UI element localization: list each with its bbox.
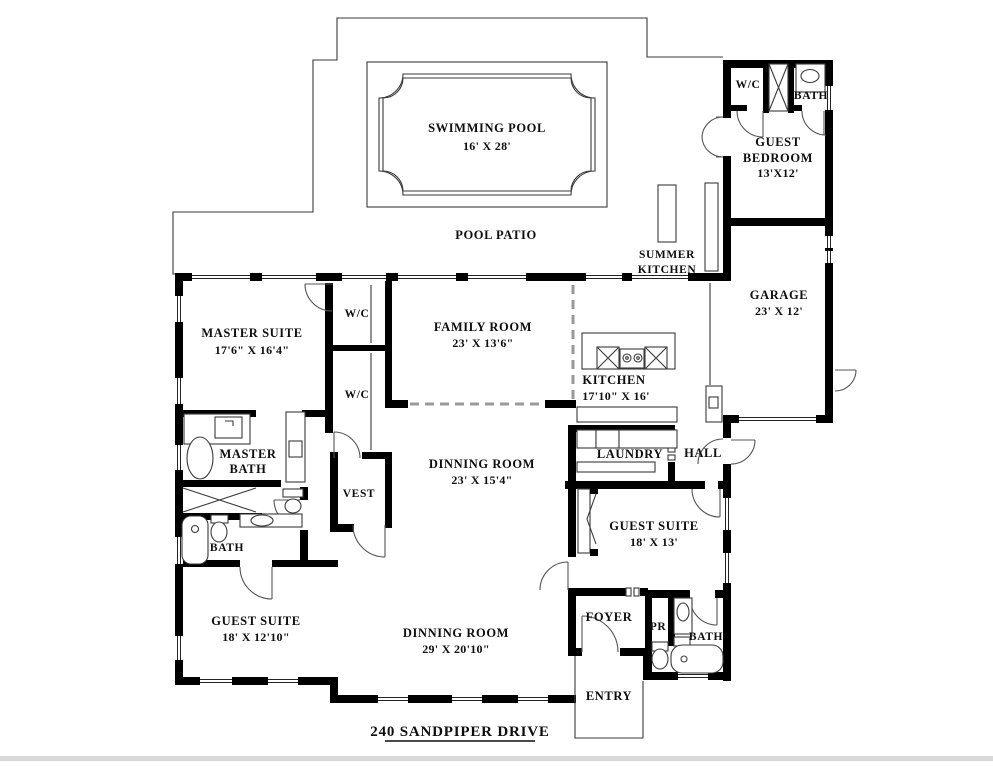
room-label-guest-bedroom-2: BEDROOM bbox=[743, 151, 813, 165]
linen-cabinet-icon bbox=[286, 412, 305, 482]
room-label-master-suite: MASTER SUITE bbox=[201, 326, 302, 340]
room-dims-kitchen: 17'10" X 16' bbox=[582, 389, 650, 403]
bathtub-icon bbox=[671, 645, 723, 673]
tub-icon bbox=[187, 437, 213, 479]
room-label-bath-right: BATH bbox=[689, 631, 723, 643]
room-label-vest: VEST bbox=[343, 488, 375, 500]
room-dims-dinning-upper: 23' X 15'4" bbox=[451, 473, 512, 487]
room-label-guest-suite-left: GUEST SUITE bbox=[211, 614, 300, 628]
sink-icon bbox=[240, 514, 302, 527]
room-label-family-room: FAMILY ROOM bbox=[434, 320, 532, 334]
room-label-guest-bedroom-1: GUEST bbox=[755, 135, 800, 149]
room-label-foyer: FOYER bbox=[586, 610, 633, 624]
room-label-laundry: LAUNDRY bbox=[597, 447, 663, 461]
room-dims-guest-suite-left: 18' X 12'10" bbox=[222, 630, 290, 644]
closet-x-icon bbox=[769, 64, 788, 111]
room-label-kitchen: KITCHEN bbox=[582, 373, 645, 387]
kitchen-counter bbox=[577, 407, 677, 422]
room-label-pr: PR bbox=[650, 621, 667, 633]
sink-x-icon bbox=[645, 347, 667, 369]
room-dims-garage: 23' X 12' bbox=[755, 304, 803, 318]
room-label-garage: GARAGE bbox=[750, 288, 808, 302]
toilet-icon bbox=[652, 642, 668, 669]
room-label-summer-kitchen-1: SUMMER bbox=[639, 249, 695, 261]
page-edge bbox=[0, 756, 993, 761]
room-label-guest-suite-right: GUEST SUITE bbox=[609, 519, 698, 533]
wall-counter bbox=[705, 183, 718, 271]
floor-plan-image: SWIMMING POOL 16' X 28' POOL PATIO W/C B… bbox=[0, 0, 993, 767]
room-label-wc-1: W/C bbox=[345, 308, 370, 320]
room-label-swimming-pool: SWIMMING POOL bbox=[428, 121, 546, 135]
room-label-entry: ENTRY bbox=[586, 689, 632, 703]
summer-kitchen-counter bbox=[658, 185, 676, 242]
room-label-wc-2: W/C bbox=[345, 389, 370, 401]
room-label-summer-kitchen-2: KITCHEN bbox=[638, 264, 697, 276]
background bbox=[0, 0, 993, 767]
floor-plan-page: SWIMMING POOL 16' X 28' POOL PATIO W/C B… bbox=[0, 0, 993, 767]
room-dims-guest-bedroom: 13'X12' bbox=[757, 166, 798, 180]
kitchen-island bbox=[582, 333, 675, 369]
room-label-bath-left: BATH bbox=[210, 542, 244, 554]
room-label-hall: HALL bbox=[684, 446, 722, 460]
toilet-icon bbox=[211, 515, 228, 542]
room-dims-dinning-lower: 29' X 20'10" bbox=[422, 642, 490, 656]
room-dims-master-suite: 17'6" X 16'4" bbox=[215, 343, 290, 357]
bathtub-icon bbox=[182, 516, 208, 564]
sink-x-icon bbox=[597, 347, 619, 369]
room-label-pool-patio: POOL PATIO bbox=[455, 228, 537, 242]
room-label-dinning-lower: DINNING ROOM bbox=[403, 626, 509, 640]
room-label-wc-guest: W/C bbox=[736, 79, 761, 91]
room-label-dinning-upper: DINNING ROOM bbox=[429, 457, 535, 471]
room-label-master-bath-2: BATH bbox=[230, 462, 267, 476]
water-heater-icon bbox=[706, 386, 722, 422]
room-dims-guest-suite-right: 18' X 13' bbox=[630, 535, 678, 549]
room-dims-family-room: 23' X 13'6" bbox=[452, 336, 513, 350]
plan-title: 240 SANDPIPER DRIVE bbox=[370, 724, 549, 740]
room-label-master-bath-1: MASTER bbox=[219, 447, 276, 461]
room-dims-swimming-pool: 16' X 28' bbox=[463, 139, 511, 153]
cooktop-icon bbox=[620, 349, 644, 368]
room-label-bath-guest-top: BATH bbox=[794, 90, 828, 102]
vanity-icon bbox=[674, 598, 692, 634]
sink-icon bbox=[796, 64, 825, 92]
